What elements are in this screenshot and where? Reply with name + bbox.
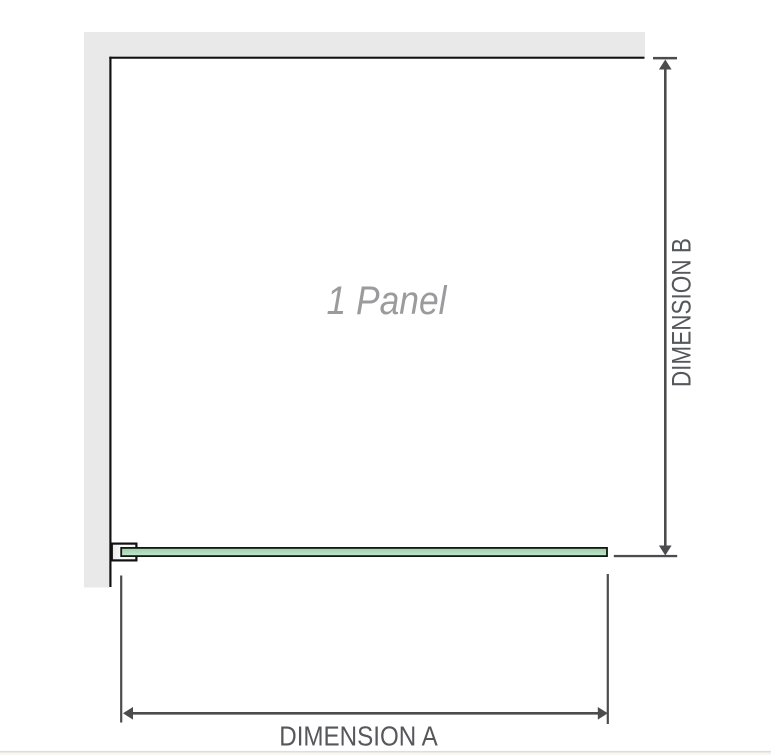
svg-text:1 Panel: 1 Panel [327,279,448,323]
svg-text:DIMENSION A: DIMENSION A [279,721,438,752]
svg-text:DIMENSION B: DIMENSION B [666,238,696,387]
